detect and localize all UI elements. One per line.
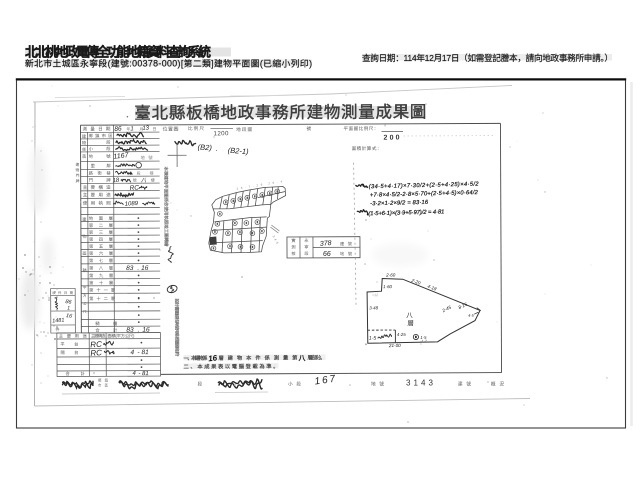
svg-text:.: . xyxy=(216,146,218,153)
svg-text:段: 段 xyxy=(304,250,309,257)
svg-text:永: 永 xyxy=(304,237,309,243)
svg-text:378: 378 xyxy=(320,240,332,248)
svg-text:+7·8×4·5/2-2·8×5·70+(2·5+4·5)×: +7·8×4·5/2-2·8×5·70+(2·5+4·5)×0·64/2 xyxy=(370,190,479,199)
svg-text:-: - xyxy=(139,371,141,377)
svg-text:主要用途: 主要用途 xyxy=(83,191,111,198)
svg-text:小 段: 小 段 xyxy=(89,145,112,152)
svg-text:比例尺: 比例尺 xyxy=(188,125,204,132)
svg-text:83: 83 xyxy=(126,265,134,272)
svg-text:16: 16 xyxy=(208,353,218,363)
svg-text:地號: 地號 xyxy=(141,154,154,161)
svg-text:段: 段 xyxy=(91,139,112,146)
svg-text:(1·5+6·1)×(3·9+5·97)/2 = 4·81: (1·5+6·1)×(3·9+5·97)/2 = 4·81 xyxy=(368,209,444,217)
svg-text:北北桃地政電傳全功能地籍資料查詢系統: 北北桃地政電傳全功能地籍資料查詢系統 xyxy=(25,45,211,60)
svg-text:落: 落 xyxy=(82,153,87,160)
svg-text:(B2): (B2) xyxy=(197,142,212,152)
svg-text:18: 18 xyxy=(112,178,120,185)
svg-text:1200: 1200 xyxy=(213,130,229,137)
svg-text:4·5: 4·5 xyxy=(468,314,474,318)
svg-text:1481: 1481 xyxy=(52,317,65,324)
svg-text:主要用途: 主要用途 xyxy=(59,332,88,339)
svg-text:位置圖: 位置圖 xyxy=(162,126,178,133)
svg-text:二、本成果表以電腦登載為準。: 二、本成果表以電腦登載為準。 xyxy=(183,362,278,370)
svg-text:地段圖: 地段圖 xyxy=(236,126,252,133)
svg-text:面積(平方公尺): 面積(平方公尺) xyxy=(107,332,135,339)
svg-text:測: 測 xyxy=(291,243,295,250)
svg-text:八: 八 xyxy=(141,177,147,184)
svg-text:2·60: 2·60 xyxy=(385,273,396,278)
svg-text:第三層: 第三層 xyxy=(89,229,113,236)
svg-text:面: 面 xyxy=(82,251,86,257)
svg-text:公: 公 xyxy=(83,301,87,306)
svg-text:實: 實 xyxy=(291,237,295,244)
svg-text:坐: 坐 xyxy=(82,146,86,152)
svg-text:尺: 尺 xyxy=(83,310,87,314)
svg-text:巷: 巷 xyxy=(150,171,154,176)
svg-text:4·25: 4·25 xyxy=(397,332,406,337)
svg-text:八: 八 xyxy=(297,354,306,362)
svg-text:八: 八 xyxy=(406,312,413,319)
svg-text:地 號: 地 號 xyxy=(89,153,112,160)
svg-text:16: 16 xyxy=(66,313,74,320)
svg-text:層建物本件係測量第: 層建物本件係測量第 xyxy=(218,353,297,361)
svg-text:測量日期: 測量日期 xyxy=(82,125,110,132)
svg-text:≈12: ≈12 xyxy=(372,293,378,297)
svg-text:第五層: 第五層 xyxy=(89,243,113,250)
svg-text:66: 66 xyxy=(323,251,331,258)
svg-text:第九層: 第九層 xyxy=(89,272,113,279)
svg-text:26·7·26 26·4: 26·7·26 26·4 xyxy=(236,179,282,190)
svg-text:牌: 牌 xyxy=(76,178,80,183)
svg-text:陽 台: 陽 台 xyxy=(60,349,78,356)
svg-text:3·48: 3·48 xyxy=(369,305,378,310)
svg-text:16: 16 xyxy=(141,265,149,272)
svg-text:第十一層: 第十一層 xyxy=(89,287,115,294)
svg-text:設計書圖經核與使用執照圖樣相符: 設計書圖經核與使用執照圖樣相符 xyxy=(173,298,180,356)
svg-text:鄉鎮市區: 鄉鎮市區 xyxy=(88,132,113,139)
svg-text:新北市土城區永寧段(建號:00378-000)[第二類]建物: 新北市土城區永寧段(建號:00378-000)[第二類]建物平面圖(已縮小列印) xyxy=(25,57,312,68)
svg-text:段: 段 xyxy=(137,170,141,176)
svg-text:(34·5+4·17)×7·30/2+(2·5+4·25)×: (34·5+4·17)×7·30/2+(2·5+4·25)×4·5/2 xyxy=(369,182,480,191)
svg-text:4·18: 4·18 xyxy=(427,284,438,292)
svg-text:主體構造: 主體構造 xyxy=(91,332,106,339)
svg-text:3143: 3143 xyxy=(406,379,434,388)
svg-text:物: 物 xyxy=(82,139,86,146)
svg-text:81: 81 xyxy=(142,371,149,377)
svg-text:81: 81 xyxy=(141,349,149,356)
svg-text:臺北縣板橋地政事務所建物測量成果圖: 臺北縣板橋地政事務所建物測量成果圖 xyxy=(134,102,426,122)
svg-text:主要構造: 主要構造 xyxy=(83,184,111,191)
svg-text:RC: RC xyxy=(129,184,139,192)
svg-text:積: 積 xyxy=(82,267,87,274)
svg-text:使用執照: 使用執照 xyxy=(83,200,111,207)
svg-text:建: 建 xyxy=(82,216,87,223)
svg-text:第十層: 第十層 xyxy=(89,279,113,286)
svg-text:1: 1 xyxy=(67,305,70,311)
svg-text:4: 4 xyxy=(130,349,134,356)
svg-text:本棟建物平面圖係依使用執照竣工圖轉繪: 本棟建物平面圖係依使用執照竣工圖轉繪 xyxy=(162,167,169,247)
svg-text:概況: 概況 xyxy=(491,381,504,388)
svg-text:建號: 建號 xyxy=(458,381,471,388)
svg-text:167: 167 xyxy=(314,373,338,387)
svg-text:層: 層 xyxy=(407,319,414,327)
svg-text:物: 物 xyxy=(76,167,80,172)
svg-text:計: 計 xyxy=(81,370,86,377)
svg-text:1167: 1167 xyxy=(113,152,130,161)
svg-text:路街巷: 路街巷 xyxy=(89,170,112,177)
svg-text:物: 物 xyxy=(82,233,86,240)
svg-text:1: 1 xyxy=(130,126,134,132)
svg-text:-: - xyxy=(137,349,139,356)
svg-text:8·15: 8·15 xyxy=(457,301,468,310)
svg-text:方: 方 xyxy=(83,293,87,298)
svg-text:號: 號 xyxy=(133,177,137,183)
svg-text:13: 13 xyxy=(142,125,150,132)
svg-text:小段: 小段 xyxy=(288,381,301,388)
svg-text:門: 門 xyxy=(76,174,80,178)
svg-text:(B2-1): (B2-1) xyxy=(227,146,249,156)
svg-text:建: 建 xyxy=(76,162,80,167)
svg-text:一、本建物係: 一、本建物係 xyxy=(183,354,208,362)
svg-text:地號: 地號 xyxy=(340,250,353,257)
svg-text:里 鄰: 里 鄰 xyxy=(91,162,112,169)
svg-text:平 台: 平 台 xyxy=(60,340,78,347)
svg-text:查詢日期：114年12月17日（如需登記謄本，請向地政事務所: 查詢日期：114年12月17日（如需登記謄本，請向地政事務所申請。） xyxy=(362,52,613,63)
svg-text:-1·7: -1·7 xyxy=(420,339,427,343)
svg-text:1089: 1089 xyxy=(125,201,139,208)
svg-text:第四層: 第四層 xyxy=(89,236,113,243)
svg-text:樓: 樓 xyxy=(151,177,155,183)
svg-text:21·00: 21·00 xyxy=(388,343,401,348)
svg-text:寧: 寧 xyxy=(304,243,308,250)
svg-text:段: 段 xyxy=(198,381,203,388)
svg-text:地號: 地號 xyxy=(371,381,384,388)
svg-text:第八層: 第八層 xyxy=(89,265,113,272)
svg-text:層部分。: 層部分。 xyxy=(307,353,325,361)
svg-text:-3·2×1·2×9/2 = 83·16: -3·2×1·2×9/2 = 83·16 xyxy=(370,200,429,207)
svg-text:地面層: 地面層 xyxy=(89,215,113,222)
svg-text:號: 號 xyxy=(306,125,311,132)
svg-text:86: 86 xyxy=(114,126,122,134)
svg-text:合: 合 xyxy=(66,370,71,377)
svg-text:建號: 建號 xyxy=(340,240,353,247)
svg-text:1: 1 xyxy=(384,123,386,127)
svg-text:平面圖比例尺：: 平面圖比例尺： xyxy=(343,125,378,132)
svg-text:日: 日 xyxy=(152,126,156,131)
svg-text:第二層: 第二層 xyxy=(89,222,113,229)
svg-text:鄉鎮: 鄉鎮 xyxy=(98,378,109,383)
svg-text:第七層: 第七層 xyxy=(89,257,113,264)
svg-text:第十二層: 第十二層 xyxy=(89,295,115,302)
svg-text:RC: RC xyxy=(90,348,102,358)
svg-text:2·45: 2·45 xyxy=(441,304,453,313)
svg-text:面積計算式：: 面積計算式： xyxy=(352,145,382,152)
svg-text:門 牌: 門 牌 xyxy=(89,177,112,184)
svg-text:200: 200 xyxy=(383,135,399,142)
svg-text:.: . xyxy=(137,265,139,272)
svg-text:第六層: 第六層 xyxy=(89,250,113,257)
svg-text:市區: 市區 xyxy=(98,383,109,388)
svg-text:3·4·3: 3·4·3 xyxy=(272,235,280,245)
svg-text:核: 核 xyxy=(291,250,296,257)
svg-text:平: 平 xyxy=(83,286,87,290)
svg-text:1·60: 1·60 xyxy=(383,284,392,289)
svg-text:1·5: 1·5 xyxy=(369,336,376,342)
